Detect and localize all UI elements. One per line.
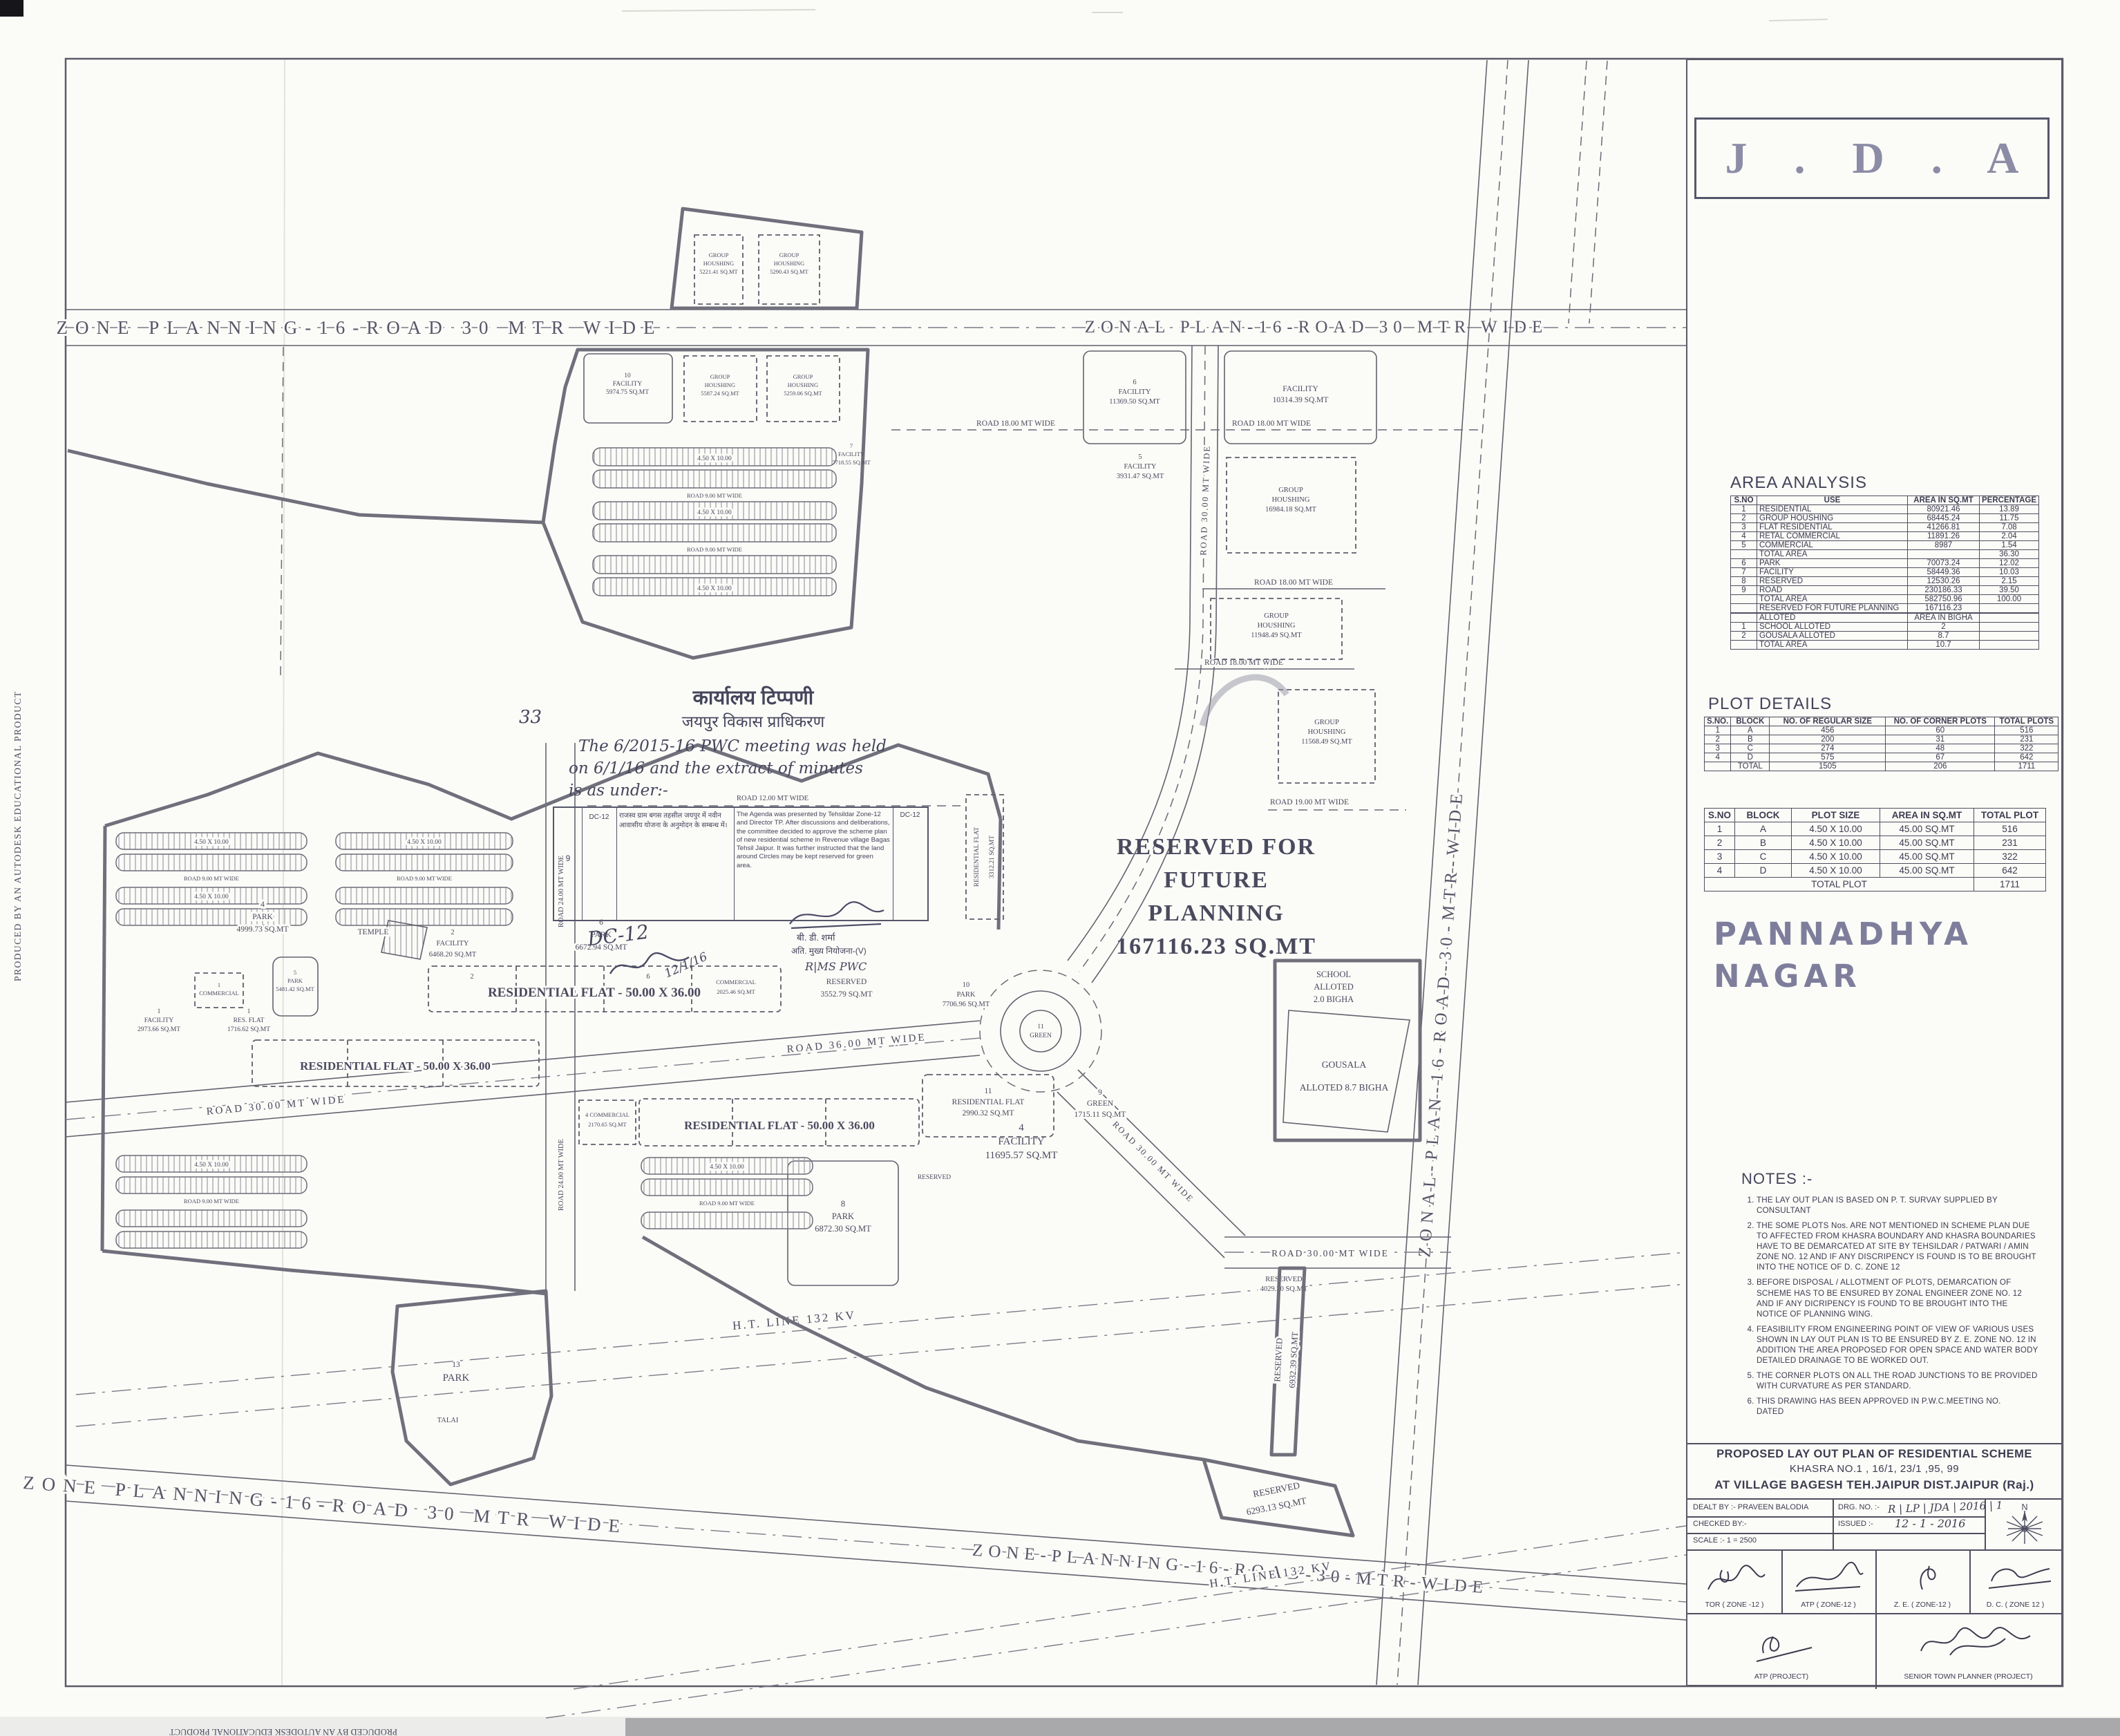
column-header: TOTAL PLOTS [1995, 717, 2059, 726]
table-cell: 12.02 [1980, 559, 2039, 568]
table-cell: 70073.24 [1908, 559, 1980, 568]
handwritten-line: The 6/2015-16 PWC meeting was held [578, 737, 887, 755]
plot-size-label: 4.50 X 10.00 [697, 455, 732, 462]
column-header: TOTAL PLOT [1974, 809, 2046, 822]
table-header-row: S.NO BLOCK PLOT SIZE AREA IN SQ.MT TOTAL… [1705, 809, 2046, 822]
map-label: 3312.21 SQ.MT [989, 836, 996, 878]
road-label: ROAD 36.00 MT WIDE [786, 1032, 927, 1055]
temple-parcel [381, 921, 427, 959]
road-label: ZONAL PLAN-16-ROAD 30 MTR WIDE [1085, 318, 1549, 337]
producer-text-left: PRODUCED BY AN AUTODESK EDUCATIONAL PROD… [12, 690, 23, 981]
table-cell: 80921.46 [1908, 505, 1980, 514]
table-row: TOTAL AREA10.7 [1731, 641, 2039, 650]
table-cell: 12530.26 [1908, 577, 1980, 586]
map-label: FACILITY [144, 1017, 174, 1024]
dealt-by: DEALT BY :- PRAVEEN BALODIA [1693, 1503, 1808, 1511]
map-label: 10314.39 SQ.MT [1273, 396, 1329, 404]
stamp-scribble [1202, 677, 1287, 726]
table-row: 3FLAT RESIDENTIAL41266.817.08 [1731, 523, 2039, 532]
table-cell: RESERVED [1757, 577, 1908, 586]
scheme-title: PROPOSED LAY OUT PLAN OF RESIDENTIAL SCH… [1687, 1448, 2061, 1461]
table-cell [1980, 614, 2039, 623]
map-label: 11948.49 SQ.MT [1251, 632, 1302, 639]
north-compass-icon: N [2000, 1501, 2050, 1548]
table-cell: 60 [1886, 726, 1995, 735]
map-label: FACILITY [838, 451, 864, 457]
margin-number: 33 [519, 707, 542, 728]
title-block: PROPOSED LAY OUT PLAN OF RESIDENTIAL SCH… [1687, 1443, 2061, 1688]
table-row: 3C27448322 [1705, 744, 2059, 753]
table-row: 2GOUSALA ALLOTED8.7 [1731, 632, 2039, 641]
notes-title: NOTES :- [1741, 1170, 1813, 1188]
map-label: RESERVED FOR [1117, 834, 1316, 860]
map-label: GROUP [1314, 719, 1339, 726]
roundabout: 11 GREEN [980, 970, 1101, 1092]
map-label: FACILITY [613, 381, 643, 388]
minutes-text-english: The Agenda was presented by Tehsildar Zo… [737, 811, 890, 870]
minutes-code: DC-12 [583, 813, 615, 821]
table-row: 2B4.50 X 10.0045.00 SQ.MT231 [1705, 836, 2046, 850]
map-label: RESIDENTIAL FLAT - 50.00 X 36.00 [684, 1119, 875, 1132]
table-cell: 206 [1886, 762, 1995, 771]
signatory-label: D. C. ( ZONE 12 ) [1969, 1601, 2061, 1609]
table-row: 8RESERVED12530.262.15 [1731, 577, 2039, 586]
table-row: 3C4.50 X 10.0045.00 SQ.MT322 [1705, 850, 2046, 864]
north-letter: N [2021, 1502, 2027, 1512]
table-cell [1731, 550, 1757, 559]
map-label: 11 [1037, 1023, 1043, 1030]
table-cell: 575 [1770, 753, 1886, 762]
map-label: HOUSHING [774, 260, 804, 267]
table-cell: 642 [1995, 753, 2059, 762]
map-label: RESIDENTIAL FLAT - 50.00 X 36.00 [300, 1059, 491, 1073]
map-label: GROUP [710, 373, 730, 380]
table-cell: A [1731, 726, 1770, 735]
table-cell: COMMERCIAL [1757, 541, 1908, 550]
table-cell: 4 [1705, 753, 1731, 762]
table-cell: 1.54 [1980, 541, 2039, 550]
table-cell: AREA IN BIGHA [1908, 614, 1980, 623]
issued-value: 12 - 1 - 2016 [1895, 1517, 1965, 1530]
park-13: 13 PARK TALAI [392, 1291, 551, 1484]
table-row: TOTAL AREA582750.96100.00 [1731, 595, 2039, 604]
map-label: 2170.65 SQ.MT [588, 1121, 627, 1128]
drg-no-label: DRG. NO. :- [1838, 1503, 1880, 1511]
road-label: ROAD 9.00 MT WIDE [184, 875, 239, 882]
table-cell: TOTAL [1731, 762, 1770, 771]
table-cell: 1 [1705, 822, 1735, 836]
map-label: 5587.24 SQ.MT [701, 390, 739, 397]
table-cell: 2.04 [1980, 532, 2039, 541]
school-gousala: SCHOOL ALLOTED 2.0 BIGHA GOUSALA ALLOTED… [1275, 961, 1420, 1140]
map-label: 2973.66 SQ.MT [138, 1026, 180, 1033]
plot-size-label: 4.50 X 10.00 [407, 839, 442, 846]
map-label: FUTURE [1164, 867, 1269, 893]
map-label: GREEN [1087, 1100, 1114, 1108]
map-label: 6468.20 SQ.MT [429, 951, 477, 959]
column-header: AREA IN SQ.MT [1880, 809, 1974, 822]
note-item: THE CORNER PLOTS ON ALL THE ROAD JUNCTIO… [1757, 1370, 2040, 1391]
table-cell: 4 [1731, 532, 1757, 541]
map-label: 2.0 BIGHA [1314, 994, 1354, 1004]
area-analysis-table: S.NO USE AREA IN SQ.MT PERCENTAGE 1RESID… [1730, 496, 2039, 650]
table-row: 2GROUP HOUSHING68445.2411.75 [1731, 514, 2039, 523]
table-cell: 1 [1731, 505, 1757, 514]
road-label: ROAD 9.00 MT WIDE [687, 546, 742, 553]
table-cell: 642 [1974, 864, 2046, 878]
road-label: ZONAL-PLAN-16-ROAD-30-MTR-WIDE [1415, 788, 1466, 1258]
map-label: RES. FLAT [234, 1017, 265, 1024]
plot-size-label: 4.50 X 10.00 [710, 1164, 744, 1171]
map-label: 11568.49 SQ.MT [1301, 738, 1352, 746]
road-label: ROAD 9.00 MT WIDE [184, 1198, 239, 1205]
table-cell [1980, 632, 2039, 641]
table-cell: 4 [1705, 864, 1735, 878]
signature [1909, 1621, 2040, 1665]
map-label: HOUSHING [703, 260, 734, 267]
plot-size-label: 4.50 X 10.00 [194, 1162, 229, 1169]
signatory-post: अति. मुख्य नियोजना-(V) [791, 945, 916, 956]
table-cell: 68445.24 [1908, 514, 1980, 523]
map-label: TEMPLE [358, 928, 389, 936]
column-header: PLOT SIZE [1792, 809, 1880, 822]
table-cell: 322 [1995, 744, 2059, 753]
map-label: 2 [470, 973, 473, 981]
plot-details-title: PLOT DETAILS [1708, 695, 1832, 714]
map-label: GROUP [709, 252, 729, 258]
signature [1895, 1559, 1957, 1595]
table-cell: 231 [1974, 836, 2046, 850]
plot-size-label: 4.50 X 10.00 [697, 509, 732, 516]
table-cell: 11891.26 [1908, 532, 1980, 541]
map-label: 10 [624, 372, 631, 379]
table-cell: 2 [1705, 735, 1731, 744]
table-cell: C [1735, 850, 1792, 864]
table-cell: 45.00 SQ.MT [1880, 864, 1974, 878]
table-cell [1731, 641, 1757, 650]
table-cell [1731, 595, 1757, 604]
table-row: ALLOTEDAREA IN BIGHA [1731, 614, 2039, 623]
table-cell [1731, 614, 1757, 623]
map-label: 9 [1098, 1088, 1102, 1097]
table-row: RESERVED FOR FUTURE PLANNING167116.23 [1731, 604, 2039, 613]
table-cell: RESIDENTIAL [1757, 505, 1908, 514]
table-cell: 2 [1731, 514, 1757, 523]
road-label: ZONE-PLANNING-16-ROAD-30-MTR-WIDE [972, 1541, 1489, 1598]
road-label: ROAD 30.00 MT WIDE [1271, 1248, 1389, 1258]
signatory-note: R|MS PWC [805, 960, 867, 973]
minutes-code-right: DC-12 [894, 811, 926, 819]
plot-details-size-table: S.NO BLOCK PLOT SIZE AREA IN SQ.MT TOTAL… [1704, 808, 2046, 891]
table-cell: 516 [1995, 726, 2059, 735]
handwritten-line: on 6/1/16 and the extract of minutes [569, 759, 863, 777]
road-label: ROAD 24.00 MT WIDE [558, 1139, 565, 1211]
table-row: 4RETAL COMMERCIAL11891.262.04 [1731, 532, 2039, 541]
map-label: SCHOOL [1316, 970, 1351, 979]
map-label: FACILITY [998, 1136, 1044, 1147]
column-header: S.NO. [1705, 717, 1731, 726]
table-cell: 9 [1731, 586, 1757, 595]
table-cell: B [1735, 836, 1792, 850]
map-label: HOUSHING [1258, 622, 1296, 630]
map-label: 2990.32 SQ.MT [962, 1109, 1014, 1117]
road-label: H.T. LINE 132 KV [732, 1308, 856, 1332]
map-label: 1716.62 SQ.MT [227, 1026, 270, 1033]
table-cell: 45.00 SQ.MT [1880, 822, 1974, 836]
table-row: 4D4.50 X 10.0045.00 SQ.MT642 [1705, 864, 2046, 878]
table-cell [1980, 623, 2039, 632]
office-note-subheading: जयपुर विकास प्राधिकरण [594, 710, 912, 732]
column-header: S.NO [1705, 809, 1735, 822]
note-item: THIS DRAWING HAS BEEN APPROVED IN P.W.C.… [1757, 1396, 2040, 1417]
map-label: 11369.50 SQ.MT [1109, 398, 1160, 406]
table-row: 6PARK70073.2412.02 [1731, 559, 2039, 568]
table-row: TOTAL15052061711 [1705, 762, 2059, 771]
map-label: PLANNING [1148, 900, 1284, 926]
map-label: 2 [451, 929, 454, 936]
table-cell: 2 [1908, 623, 1980, 632]
table-cell: 4.50 X 10.00 [1792, 864, 1880, 878]
scheme-name-handwritten: PANNADHYA NAGAR [1714, 916, 1973, 994]
column-header: PERCENTAGE [1980, 496, 2039, 505]
table-cell [1908, 550, 1980, 559]
table-cell: 39.50 [1980, 586, 2039, 595]
note-item: BEFORE DISPOSAL / ALLOTMENT OF PLOTS, DE… [1757, 1277, 2040, 1319]
column-header: S.NO [1731, 496, 1757, 505]
table-cell: C [1731, 744, 1770, 753]
note-item: THE SOME PLOTS Nos. ARE NOT MENTIONED IN… [1757, 1220, 2040, 1272]
table-cell: B [1731, 735, 1770, 744]
map-label: 7 [850, 442, 853, 449]
table-cell: 10.7 [1908, 641, 1980, 650]
table-cell: 1505 [1770, 762, 1886, 771]
signature [1743, 1625, 1826, 1667]
table-cell: RESERVED FOR FUTURE PLANNING [1757, 604, 1908, 613]
map-label: FACILITY [1124, 463, 1156, 471]
table-cell: ROAD [1757, 586, 1908, 595]
signatory-label: Z. E. ( ZONE-12 ) [1875, 1601, 1969, 1609]
table-cell: 1 [1705, 726, 1731, 735]
map-label: PARK [252, 913, 273, 921]
table-cell: 167116.23 [1908, 604, 1980, 613]
road-label: ROAD 18.00 MT WIDE [976, 419, 1055, 428]
table-cell [1980, 604, 2039, 613]
total-value: 1711 [1974, 878, 2046, 891]
map-label: 1 [158, 1008, 161, 1015]
map-label: GROUP [793, 373, 813, 380]
scan-corner-mark [0, 0, 23, 17]
table-cell [1705, 762, 1731, 771]
map-label: 16984.18 SQ.MT [1265, 506, 1316, 513]
map-label: FACILITY [1283, 385, 1318, 393]
upper-cluster: GROUP HOUSHING 5221.41 SQ.MT GROUP HOUSH… [68, 209, 871, 676]
table-cell: 48 [1886, 744, 1995, 753]
table-cell: 6 [1731, 559, 1757, 568]
map-label: 6 [1133, 379, 1136, 386]
table-cell: 13.89 [1980, 505, 2039, 514]
agency-title: J . D . A [1707, 133, 2037, 184]
table-cell: 516 [1974, 822, 2046, 836]
issued-label: ISSUED :- [1838, 1520, 1873, 1528]
table-cell: 230186.33 [1908, 586, 1980, 595]
table-cell: 100.00 [1980, 595, 2039, 604]
table-cell: FACILITY [1757, 568, 1908, 577]
right-panel: J . D . A AREA ANALYSIS S.NO USE AREA IN… [1686, 59, 2063, 1686]
road-label: ROAD 18.00 MT WIDE [1254, 578, 1333, 587]
table-cell: 10.03 [1980, 568, 2039, 577]
map-label: RESIDENTIAL FLAT [952, 1098, 1025, 1106]
map-label: 6872.30 SQ.MT [815, 1224, 871, 1234]
table-cell: GOUSALA ALLOTED [1757, 632, 1908, 641]
table-cell: 2 [1705, 836, 1735, 850]
table-cell: 4.50 X 10.00 [1792, 850, 1880, 864]
column-header: USE [1757, 496, 1908, 505]
table-cell: 5 [1731, 541, 1757, 550]
fold-line [282, 59, 285, 1686]
signatory-label: SENIOR TOWN PLANNER (PROJECT) [1875, 1672, 2061, 1681]
table-cell: GROUP HOUSHING [1757, 514, 1908, 523]
table-cell [1731, 604, 1757, 613]
map-label: 5 [1138, 453, 1142, 461]
plot-size-label: 4.50 X 10.00 [194, 839, 229, 846]
table-row: 7FACILITY58449.3610.03 [1731, 568, 2039, 577]
map-label: GROUP [1278, 487, 1303, 494]
plot-size-label: 4.50 X 10.00 [194, 894, 229, 900]
map-label: HOUSHING [705, 381, 735, 388]
table-cell: D [1731, 753, 1770, 762]
scheme-location: AT VILLAGE BAGESH TEH.JAIPUR DIST.JAIPUR… [1687, 1478, 2061, 1492]
table-cell: 1 [1731, 623, 1757, 632]
table-row: 2B20031231 [1705, 735, 2059, 744]
table-cell: 2 [1731, 632, 1757, 641]
map-label: ALLOTED [1314, 982, 1354, 992]
map-label: RESERVED [1265, 1276, 1303, 1283]
table-cell: 8987 [1908, 541, 1980, 550]
table-header-row: S.NO. BLOCK NO. OF REGULAR SIZE NO. OF C… [1705, 717, 2059, 726]
map-label: RESERVED [918, 1174, 951, 1181]
map-label: 1715.11 SQ.MT [1075, 1111, 1126, 1119]
table-cell: 58449.36 [1908, 568, 1980, 577]
map-label: HOUSHING [788, 381, 818, 388]
signature [1791, 1562, 1867, 1596]
map-label: PARK [443, 1372, 470, 1384]
map-label: 5974.75 SQ.MT [606, 389, 649, 396]
table-cell: 231 [1995, 735, 2059, 744]
table-cell: 200 [1770, 735, 1886, 744]
table-header-row: S.NO USE AREA IN SQ.MT PERCENTAGE [1731, 496, 2039, 505]
map-label: 5481.42 SQ.MT [276, 985, 314, 992]
table-cell: 11.75 [1980, 514, 2039, 523]
table-cell: 322 [1974, 850, 2046, 864]
producer-text-bottom: PRODUCED BY AN AUTODESK EDUCATIONAL PROD… [169, 1727, 397, 1736]
table-cell: 3 [1705, 744, 1731, 753]
minutes-sno: 9 [554, 853, 582, 863]
office-note-heading: कार्यालय टिप्पणी [594, 683, 912, 710]
road-label: ROAD 9.00 MT WIDE [397, 875, 452, 882]
map-label: 5 [294, 969, 296, 976]
table-cell: 8 [1731, 577, 1757, 586]
road-label: ROAD 30.00 MT WIDE [1110, 1120, 1195, 1205]
table-cell: D [1735, 864, 1792, 878]
table-cell: ALLOTED [1757, 614, 1908, 623]
table-cell: 36.30 [1980, 550, 2039, 559]
table-cell: A [1735, 822, 1792, 836]
map-label: FACILITY [436, 940, 469, 947]
road-label: ROAD 18.00 MT WIDE [1232, 419, 1311, 428]
table-cell: FLAT RESIDENTIAL [1757, 523, 1908, 532]
office-note: 33 कार्यालय टिप्पणी जयपुर विकास प्राधिकर… [515, 674, 971, 1006]
signatory-label: TOR ( ZONE -12 ) [1687, 1601, 1781, 1609]
scheme-name-line: NAGAR [1714, 958, 1973, 994]
table-cell: 45.00 SQ.MT [1880, 836, 1974, 850]
column-header: NO. OF CORNER PLOTS [1886, 717, 1995, 726]
map-label: HOUSHING [1272, 496, 1310, 504]
table-cell: 582750.96 [1908, 595, 1980, 604]
table-cell: TOTAL AREA [1757, 595, 1908, 604]
note-item: THE LAY OUT PLAN IS BASED ON P. T. SURVA… [1757, 1195, 2040, 1216]
signature-scribble [784, 900, 888, 931]
table-cell: 31 [1886, 735, 1995, 744]
map-label: GOUSALA [1322, 1059, 1367, 1070]
table-cell: 2.15 [1980, 577, 2039, 586]
map-label: 11 [984, 1087, 992, 1095]
road-label: ROAD 19.00 MT WIDE [1270, 798, 1349, 806]
plot-details-block-table: S.NO. BLOCK NO. OF REGULAR SIZE NO. OF C… [1704, 717, 2059, 771]
notes-list: THE LAY OUT PLAN IS BASED ON P. T. SURVA… [1741, 1195, 2040, 1422]
map-label: COMMERCIAL [199, 990, 239, 997]
road-label: ZONE PLANNING-16-ROAD 30 MTR WIDE [57, 317, 663, 338]
column-header: BLOCK [1735, 809, 1792, 822]
table-row: 1RESIDENTIAL80921.4613.89 [1731, 505, 2039, 514]
column-header: AREA IN SQ.MT [1908, 496, 1980, 505]
map-label: PARK [832, 1211, 854, 1221]
scale: SCALE :- 1 = 2500 [1693, 1536, 1757, 1545]
column-header: BLOCK [1731, 717, 1770, 726]
map-label: 11695.57 SQ.MT [985, 1150, 1058, 1161]
map-label: 1 [218, 981, 220, 988]
table-cell: 456 [1770, 726, 1886, 735]
table-cell: 7.08 [1980, 523, 2039, 532]
table-cell: 41266.81 [1908, 523, 1980, 532]
table-cell: TOTAL AREA [1757, 641, 1908, 650]
map-label: 4 COMMERCIAL [585, 1111, 630, 1118]
column-header: NO. OF REGULAR SIZE [1770, 717, 1886, 726]
table-cell [1980, 641, 2039, 650]
map-label: 5290.43 SQ.MT [770, 268, 808, 275]
road-label: ROAD 9.00 MT WIDE [687, 492, 742, 499]
plot-size-label: 4.50 X 10.00 [697, 585, 732, 592]
signatory-label: ATP ( ZONE-12 ) [1781, 1601, 1875, 1609]
table-cell: SCHOOL ALLOTED [1757, 623, 1908, 632]
table-cell: 3 [1731, 523, 1757, 532]
table-row: 1A45660516 [1705, 726, 2059, 735]
table-row: 4D57567642 [1705, 753, 2059, 762]
map-label: GROUP [1264, 612, 1289, 620]
table-cell: 274 [1770, 744, 1886, 753]
map-label: RESIDENTIAL FLAT [974, 827, 981, 887]
table-row: 1A4.50 X 10.0045.00 SQ.MT516 [1705, 822, 2046, 836]
map-label: 1 [247, 1008, 251, 1015]
table-cell: TOTAL AREA [1757, 550, 1908, 559]
map-label: 5221.41 SQ.MT [699, 268, 738, 275]
map-label: ALLOTED 8.7 BIGHA [1300, 1082, 1389, 1093]
table-row: 9ROAD230186.3339.50 [1731, 586, 2039, 595]
table-total-row: TOTAL PLOT 1711 [1705, 878, 2046, 891]
note-item: FEASIBILITY FROM ENGINEERING POINT OF VI… [1757, 1324, 2040, 1366]
signature [1983, 1560, 2056, 1595]
total-label: TOTAL PLOT [1705, 878, 1974, 891]
handwritten-line: is as under:- [569, 782, 668, 800]
